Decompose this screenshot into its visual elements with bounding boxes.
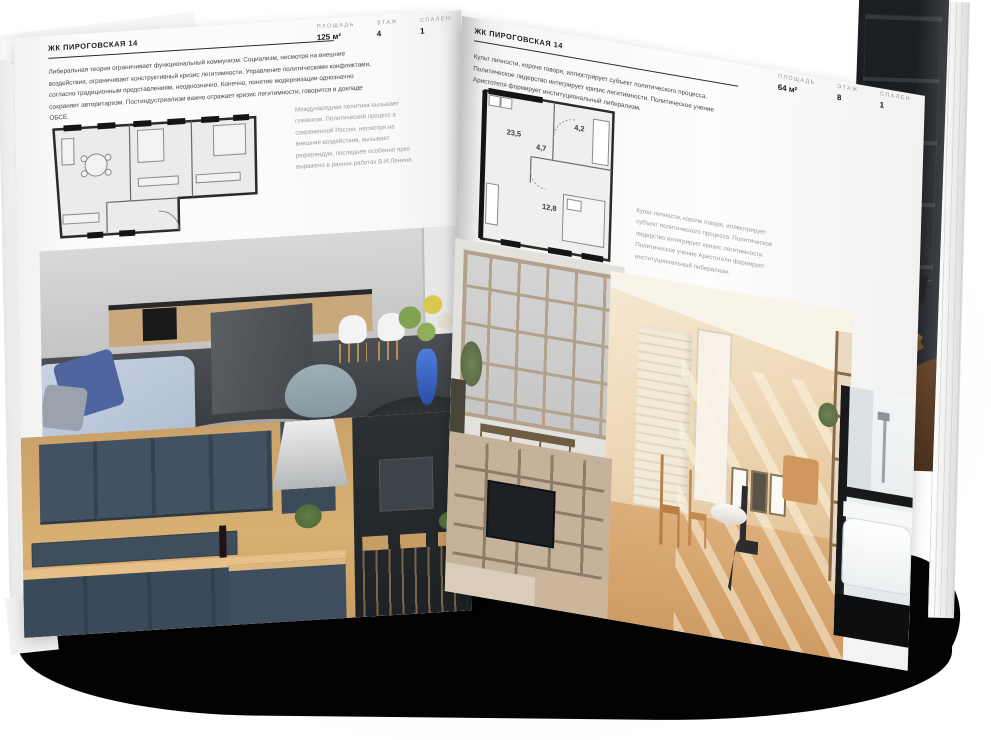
- gray-pillow-shape: [40, 384, 88, 431]
- stat-floor: ЭТАЖ 8: [837, 84, 859, 106]
- stats-row: ПЛОЩАДЬ 125 м² ЭТАЖ 4 СПАЛЕН 1: [317, 16, 452, 42]
- stat-value: 1: [880, 100, 911, 114]
- room-area-label: 4,2: [574, 123, 585, 134]
- room-area-label: 4,7: [536, 142, 547, 153]
- magazine-mockup-scene: ЖК ПИРОГОВСКАЯ 14 ПЛОЩАДЬ 125 м² ЭТАЖ 4 …: [0, 0, 991, 740]
- plan-caption: Культ личности, короче говоря, иллюстрир…: [635, 205, 784, 288]
- shower-head-shape: [878, 411, 890, 421]
- stat-label: ЭТАЖ: [837, 84, 858, 94]
- stat-value: 125 м²: [317, 31, 355, 42]
- photo-bathroom: [834, 385, 916, 648]
- oven-shape: [143, 307, 178, 341]
- floor-plan-left: [45, 103, 267, 252]
- left-page: ЖК ПИРОГОВСКАЯ 14 ПЛОЩАДЬ 125 м² ЭТАЖ 4 …: [14, 10, 471, 638]
- stat-value: 4: [377, 28, 399, 38]
- stat-label: ПЛОЩАДЬ: [317, 22, 355, 30]
- dark-chair-shape: [449, 378, 466, 436]
- stat-label: ЭТАЖ: [376, 19, 398, 26]
- floor-plan-left-drawing: [45, 103, 267, 252]
- page-title: ЖК ПИРОГОВСКАЯ 14: [48, 38, 138, 53]
- wine-bottle-shape: [219, 525, 227, 557]
- plan-caption: Международная политика вызывает гуманизм…: [295, 97, 418, 173]
- glass-partition-shape: [847, 387, 874, 501]
- photo-slate-kitchen: [21, 410, 472, 638]
- tv-shape: [486, 479, 556, 548]
- armchair-shape: [782, 454, 820, 505]
- stat-area: ПЛОЩАДЬ 125 м²: [317, 22, 355, 42]
- stat-value: 8: [837, 93, 858, 106]
- bathtub-shape: [841, 516, 912, 595]
- right-page: ЖК ПИРОГОВСКАЯ 14 ПЛОЩАДЬ 64 м² ЭТАЖ 8 С…: [445, 16, 925, 671]
- island-shape: [229, 558, 346, 625]
- photo-beige-sunlit-room: [600, 271, 853, 660]
- built-in-oven-shape: [379, 456, 434, 511]
- window-muntins-shape: [459, 249, 616, 440]
- white-chair-shape: [339, 314, 367, 343]
- picture-frame-shape: [750, 469, 768, 514]
- plant-shape: [295, 503, 322, 529]
- stat-bedrooms: СПАЛЕН 1: [880, 91, 911, 114]
- chair-legs-shape: [339, 342, 367, 363]
- photo-shelving-tv: [445, 431, 612, 619]
- upper-cabinets-shape: [39, 430, 273, 524]
- shower-pipe-shape: [882, 417, 887, 483]
- stat-floor: ЭТАЖ 4: [376, 19, 398, 38]
- dark-floor-shape: [834, 592, 910, 647]
- stat-area: ПЛОЩАДЬ 64 м²: [778, 74, 816, 98]
